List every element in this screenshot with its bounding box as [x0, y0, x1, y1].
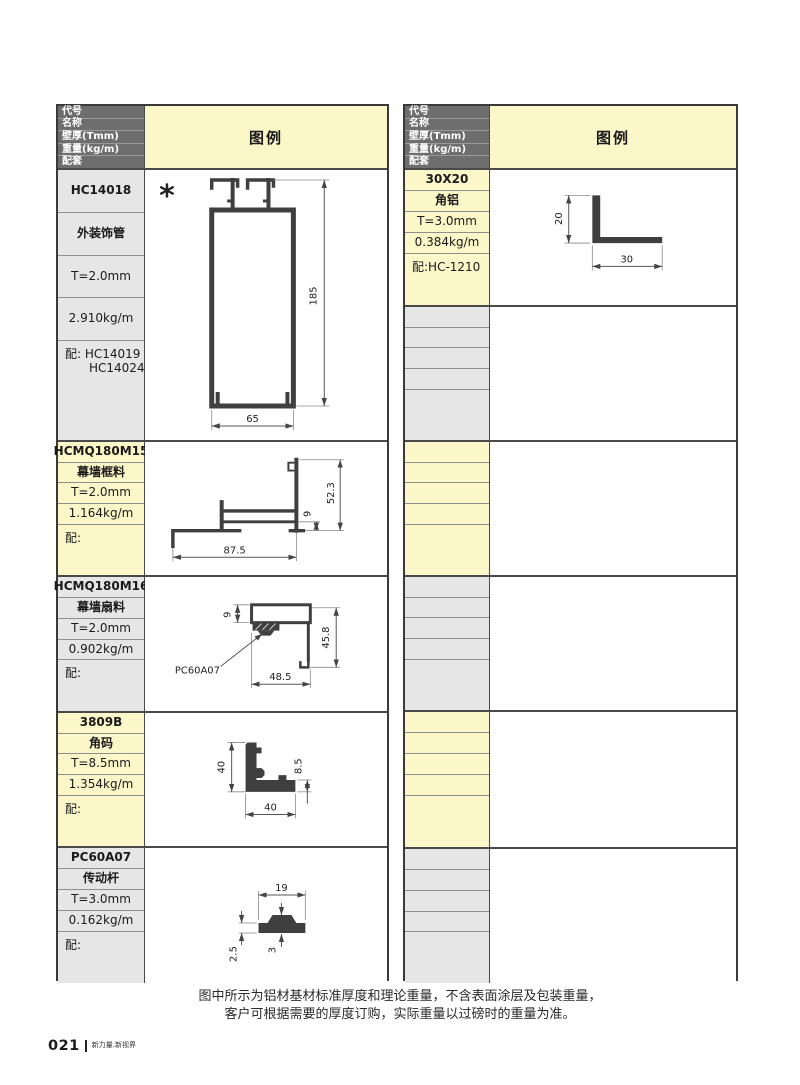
- diagram-30x20: 20 30: [490, 170, 736, 305]
- header-thickness: 壁厚(Tmm): [405, 131, 489, 144]
- dim-t-label: 2.5: [229, 946, 240, 962]
- page-number: 021: [48, 1038, 80, 1054]
- dim-h-label: 40: [264, 803, 277, 814]
- header-code: 代号: [58, 106, 144, 119]
- empty-cell: [405, 775, 489, 796]
- diagram-hcmq180m15: 9 52.3 87.5: [145, 442, 387, 575]
- weight-cell: 0.162kg/m: [58, 911, 144, 932]
- weight-cell: 1.354kg/m: [58, 775, 144, 796]
- empty-cell: [405, 463, 489, 484]
- dim-tube-label: 9: [223, 612, 234, 618]
- profile-drawing-hcmq180m16: 9 45.8 48.5 PC60A07: [145, 577, 387, 711]
- header-code: 代号: [405, 106, 489, 119]
- thickness-cell: T=3.0mm: [58, 890, 144, 911]
- empty-section-3: [405, 575, 736, 710]
- section-hcmq180m16: HCMQ180M16 幕墙扇料 T=2.0mm 0.902kg/m 配:: [58, 575, 387, 711]
- empty-cell: [405, 912, 489, 933]
- weight-cell: 1.164kg/m: [58, 504, 144, 525]
- section-hc14018: HC14018 外装饰管 T=2.0mm 2.910kg/m 配: HC1401…: [58, 170, 387, 440]
- code-cell: HCMQ180M16: [58, 577, 144, 598]
- dim-h-label: 30: [621, 254, 634, 265]
- empty-cell: [405, 577, 489, 598]
- empty-cell: [405, 348, 489, 369]
- label-column: 30X20 角铝 T=3.0mm 0.384kg/m 配:HC-1210: [405, 170, 490, 305]
- header-accessory: 配套: [58, 156, 144, 168]
- profile-shape: [173, 460, 303, 547]
- profile-drawing-hcmq180m15: 9 52.3 87.5: [145, 442, 387, 575]
- dim-v-label: 20: [554, 212, 565, 225]
- dim-height-label: 185: [308, 286, 319, 305]
- name-cell: 角铝: [405, 191, 489, 212]
- diagram-pc60a07: 19 2.5 3: [145, 848, 387, 983]
- label-column: HCMQ180M16 幕墙扇料 T=2.0mm 0.902kg/m 配:: [58, 577, 145, 711]
- name-cell: 传动杆: [58, 869, 144, 890]
- code-cell: 30X20: [405, 170, 489, 191]
- dimension-lines: 9 45.8 48.5 PC60A07: [175, 605, 340, 688]
- callout-label: PC60A07: [175, 665, 220, 676]
- profile-drawing-pc60a07: 19 2.5 3: [145, 848, 387, 983]
- empty-cell: [405, 598, 489, 619]
- weight-cell: 0.902kg/m: [58, 640, 144, 661]
- header-accessory: 配套: [405, 156, 489, 168]
- accessory-line1: 配:HC-1210: [412, 261, 480, 275]
- section-30x20: 30X20 角铝 T=3.0mm 0.384kg/m 配:HC-1210: [405, 170, 736, 305]
- empty-cell: [405, 307, 489, 328]
- dim-w-label: 19: [275, 883, 288, 894]
- dim-mid-label: 3: [267, 947, 278, 953]
- profile-drawing-30x20: 20 30: [490, 170, 736, 305]
- profile-shape: [252, 605, 311, 668]
- footnote: 图中所示为铝材基材标准厚度和理论重量，不含表面涂层及包装重量， 客户可根据需要的…: [0, 988, 800, 1024]
- header-legend: 图例: [145, 106, 387, 168]
- empty-cell: [405, 618, 489, 639]
- left-profile-table: 代号 名称 壁厚(Tmm) 重量(kg/m) 配套 图例 HC14018 外装饰…: [56, 104, 389, 981]
- empty-cell: [405, 369, 489, 390]
- empty-cell: [405, 442, 489, 463]
- name-cell: 角码: [58, 734, 144, 755]
- dim-t-label: 8.5: [293, 758, 304, 774]
- accessory-line1: 配:: [65, 803, 81, 817]
- label-column: PC60A07 传动杆 T=3.0mm 0.162kg/m 配:: [58, 848, 145, 983]
- dim-height-label: 52.3: [326, 482, 337, 504]
- code-cell: HC14018: [58, 170, 144, 213]
- header-weight: 重量(kg/m): [58, 144, 144, 157]
- footnote-line2: 客户可根据需要的厚度订购，实际重量以过磅时的重量为准。: [0, 1006, 800, 1024]
- thickness-cell: T=2.0mm: [58, 483, 144, 504]
- empty-cell: [405, 328, 489, 349]
- accessory-cell: 配:: [58, 796, 144, 846]
- diagram-hcmq180m16: 9 45.8 48.5 PC60A07: [145, 577, 387, 711]
- empty-cell: [405, 504, 489, 525]
- empty-section-2: [405, 440, 736, 575]
- thickness-cell: T=2.0mm: [58, 256, 144, 299]
- name-cell: 幕墙框料: [58, 463, 144, 484]
- dimension-lines: 185 65: [212, 180, 330, 430]
- right-profile-table: 代号 名称 壁厚(Tmm) 重量(kg/m) 配套 图例 30X20 角铝 T=…: [403, 104, 738, 981]
- label-column: HC14018 外装饰管 T=2.0mm 2.910kg/m 配: HC1401…: [58, 170, 145, 440]
- code-cell: 3809B: [58, 713, 144, 734]
- accessory-line1: 配:: [65, 939, 81, 953]
- accessory-cell: 配:: [58, 660, 144, 711]
- empty-section-1: [405, 305, 736, 440]
- left-table-header: 代号 名称 壁厚(Tmm) 重量(kg/m) 配套 图例: [58, 106, 387, 170]
- empty-section-5: [405, 847, 736, 983]
- header-legend: 图例: [490, 106, 736, 168]
- empty-cell: [405, 891, 489, 912]
- empty-cell: [405, 870, 489, 891]
- empty-diagram: [490, 577, 736, 710]
- label-column: 3809B 角码 T=8.5mm 1.354kg/m 配:: [58, 713, 145, 846]
- page-footer: 021 新力量.新视界: [48, 1038, 136, 1054]
- weight-cell: 0.384kg/m: [405, 233, 489, 254]
- empty-cell: [405, 660, 489, 710]
- dim-width-label: 48.5: [269, 672, 291, 683]
- empty-cell: [405, 390, 489, 440]
- thickness-cell: T=2.0mm: [58, 619, 144, 640]
- empty-cell: [405, 754, 489, 775]
- dimension-lines: 20 30: [554, 195, 662, 270]
- name-cell: 外装饰管: [58, 213, 144, 256]
- accessory-line1: 配: HC14019: [65, 348, 140, 362]
- diagram-3809b: 40 8.5 40: [145, 713, 387, 846]
- dim-width-label: 65: [246, 414, 259, 425]
- empty-diagram: [490, 442, 736, 575]
- empty-cell: [405, 796, 489, 847]
- header-thickness: 壁厚(Tmm): [58, 131, 144, 144]
- footer-brand: 新力量.新视界: [85, 1040, 136, 1051]
- dim-v-label: 40: [217, 761, 228, 774]
- weight-cell: 2.910kg/m: [58, 298, 144, 341]
- catalog-page: 代号 名称 壁厚(Tmm) 重量(kg/m) 配套 图例 HC14018 外装饰…: [0, 0, 800, 1085]
- profile-shape: [246, 743, 296, 792]
- empty-section-4: [405, 710, 736, 847]
- header-label-column: 代号 名称 壁厚(Tmm) 重量(kg/m) 配套: [405, 106, 490, 168]
- section-3809b: 3809B 角码 T=8.5mm 1.354kg/m 配:: [58, 711, 387, 846]
- name-cell: 幕墙扇料: [58, 598, 144, 619]
- empty-diagram: [490, 849, 736, 983]
- thickness-cell: T=8.5mm: [58, 754, 144, 775]
- footnote-line1: 图中所示为铝材基材标准厚度和理论重量，不含表面涂层及包装重量，: [0, 988, 800, 1006]
- empty-cell: [405, 483, 489, 504]
- right-table-header: 代号 名称 壁厚(Tmm) 重量(kg/m) 配套 图例: [405, 106, 736, 170]
- profile-shape: [259, 915, 306, 933]
- asterisk-marker: *: [159, 179, 175, 214]
- accessory-line1: 配:: [65, 532, 81, 546]
- empty-cell: [405, 849, 489, 870]
- accessory-cell: 配:: [58, 525, 144, 575]
- empty-cell: [405, 712, 489, 733]
- dim-height-label: 45.8: [321, 626, 332, 648]
- empty-cell: [405, 639, 489, 660]
- profile-drawing-hc14018: *: [145, 170, 387, 440]
- accessory-line2: HC14024: [65, 362, 145, 376]
- section-hcmq180m15: HCMQ180M15 幕墙框料 T=2.0mm 1.164kg/m 配:: [58, 440, 387, 575]
- header-name: 名称: [405, 119, 489, 132]
- diagram-hc14018: *: [145, 170, 387, 440]
- code-cell: HCMQ180M15: [58, 442, 144, 463]
- accessory-cell: 配:HC-1210: [405, 254, 489, 305]
- accessory-cell: 配: HC14019 HC14024: [58, 341, 144, 440]
- empty-cell: [405, 733, 489, 754]
- empty-diagram: [490, 307, 736, 440]
- header-name: 名称: [58, 119, 144, 132]
- header-label-column: 代号 名称 壁厚(Tmm) 重量(kg/m) 配套: [58, 106, 145, 168]
- empty-cell: [405, 932, 489, 983]
- label-column: HCMQ180M15 幕墙框料 T=2.0mm 1.164kg/m 配:: [58, 442, 145, 575]
- accessory-cell: 配:: [58, 932, 144, 983]
- empty-cell: [405, 525, 489, 575]
- profile-shape: [212, 180, 294, 406]
- empty-diagram: [490, 712, 736, 847]
- code-cell: PC60A07: [58, 848, 144, 869]
- thickness-cell: T=3.0mm: [405, 212, 489, 233]
- header-weight: 重量(kg/m): [405, 144, 489, 157]
- dim-width-label: 87.5: [224, 545, 246, 556]
- profile-shape: [592, 195, 662, 243]
- accessory-line1: 配:: [65, 667, 81, 681]
- dim-gap-label: 9: [302, 511, 313, 517]
- section-pc60a07: PC60A07 传动杆 T=3.0mm 0.162kg/m 配:: [58, 846, 387, 983]
- profile-drawing-3809b: 40 8.5 40: [145, 713, 387, 846]
